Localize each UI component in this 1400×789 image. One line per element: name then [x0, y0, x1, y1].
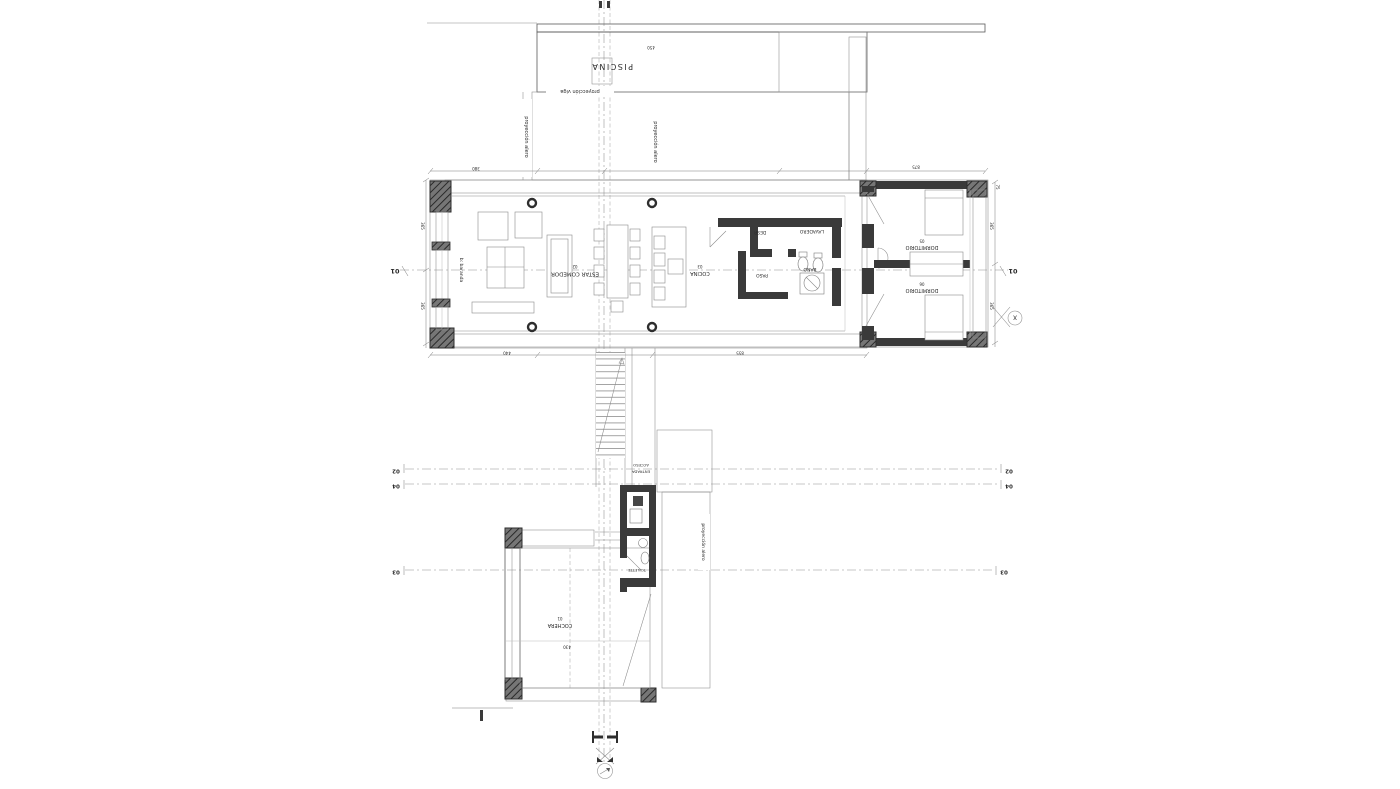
pool-label: PISCINA: [591, 62, 633, 71]
beam-projection-label: proyección viga: [560, 88, 600, 95]
dim-text: 365: [989, 222, 994, 230]
dining-set: [594, 225, 640, 312]
dim-text: 855: [736, 351, 744, 356]
dim-text: 75: [995, 184, 1000, 190]
gallery-edge-label: b: baranda: [458, 258, 464, 283]
corner-block: [430, 181, 451, 212]
west-window-wall: [432, 212, 450, 330]
top-dimension-line: 380 875 450: [428, 45, 988, 174]
section-04-right: 04: [1005, 483, 1013, 489]
chair: [630, 265, 640, 277]
dim-text: 430: [563, 645, 571, 650]
gate-arrow: [597, 757, 603, 762]
chair: [594, 283, 604, 295]
toilette-block: TOILETTE: [620, 485, 656, 592]
x-marker-label: X: [1013, 314, 1017, 321]
living-label: ESTAR COMEDOR: [551, 271, 599, 277]
dim-text: 380: [472, 166, 480, 171]
garage-number: 01: [557, 616, 563, 621]
eave-mid-label: proyección alero: [652, 121, 659, 162]
corner-block: [505, 528, 522, 548]
stone-column: [849, 37, 866, 180]
door-swing: [866, 294, 884, 326]
section-04-left: 04: [392, 483, 400, 489]
dim-text: 450: [647, 45, 655, 50]
pool-terrace: PISCINA proyección viga proyección alero…: [427, 23, 988, 180]
access-label-2: ENTRADA: [632, 470, 650, 475]
reference-tick: [480, 710, 483, 721]
section-marker-x: X: [993, 307, 1022, 327]
central-stair: ACCESO ENTRADA: [596, 348, 655, 487]
outdoor-stair: proyección alero: [657, 430, 712, 688]
wc: [641, 552, 649, 564]
living-furniture: [472, 212, 572, 313]
dorm2-number: 06: [919, 282, 925, 287]
sofa: [487, 247, 524, 288]
pool-outline: [537, 32, 867, 92]
living-number: 02: [572, 264, 578, 269]
living-wing: b: baranda: [430, 180, 867, 348]
door-swing: [866, 192, 884, 224]
garage-block: 01 COCHERA 430 TOILETTE: [505, 485, 656, 702]
stone-deck-upper: [779, 32, 867, 92]
dim-text: 365: [989, 302, 994, 310]
stone-strip-east: [973, 190, 986, 338]
chair: [594, 247, 604, 259]
section-02-right: 02: [1005, 468, 1013, 474]
chair: [630, 247, 640, 259]
bedroom-wing: 05 DORMITORIO 06 DORMITORIO 365 365 75 X: [860, 180, 1022, 347]
corner-block: [641, 688, 656, 702]
bed: [925, 295, 963, 340]
bed: [925, 190, 963, 235]
access-label-1: ACCESO: [633, 463, 649, 468]
stone-band-top: [445, 180, 862, 193]
dim-text: 365: [420, 222, 425, 230]
axis-tag: [607, 1, 610, 8]
dorm2-label: DORMITORIO: [905, 287, 938, 293]
section-03-left: 03: [392, 569, 400, 575]
corner-block: [430, 328, 454, 348]
section-01-left: 01: [390, 267, 400, 275]
sink: [639, 539, 648, 548]
toilette-label: TOILETTE: [627, 568, 647, 573]
low-cabinet: [472, 302, 534, 313]
stone-band-garage-bottom: [506, 688, 656, 701]
dim-text: 440: [503, 351, 511, 356]
stone-terrace: [532, 92, 849, 180]
east-dimension-line: 365 365 75: [989, 180, 1000, 347]
chair: [630, 229, 640, 241]
landing: [657, 430, 712, 492]
entry-gate: [593, 731, 617, 779]
stone-band-bottom: [445, 334, 862, 347]
dorm1-number: 05: [919, 239, 925, 244]
chair: [611, 301, 623, 312]
section-02-left: 02: [392, 468, 400, 474]
eave-stair-label: proyección alero: [700, 523, 707, 561]
floor-plan-canvas: PISCINA proyección viga proyección alero…: [0, 0, 1400, 789]
door-swing: [627, 556, 641, 570]
water-heater: [633, 496, 643, 506]
garage-ramp-line: [623, 594, 651, 686]
dorm1-label: DORMITORIO: [905, 244, 938, 250]
desp-label: DESP.: [754, 229, 767, 235]
section-03-right: 03: [1000, 569, 1008, 575]
kitchen-island: [652, 227, 686, 307]
paso-label: PASO: [756, 272, 768, 278]
armchair: [515, 212, 542, 238]
eave-left-label: proyección alero: [523, 116, 530, 157]
dim-text: 365: [420, 302, 425, 310]
axis-lines: [400, 0, 1008, 762]
axis-tag: [599, 1, 602, 8]
armchair: [478, 212, 508, 240]
lavadero-label: LAVADERO: [799, 228, 824, 234]
bano-label: BAÑO: [803, 266, 817, 273]
dining-table: [607, 225, 628, 298]
chair: [630, 283, 640, 295]
corner-block: [505, 678, 522, 699]
kitchen-label: COCINA: [690, 270, 710, 276]
chair: [594, 229, 604, 241]
sideboard-inner: [551, 239, 568, 293]
section-01-right: 01: [1008, 267, 1018, 275]
garage-label: COCHERA: [547, 622, 572, 628]
floor-plan-page: PISCINA proyección viga proyección alero…: [0, 0, 1400, 789]
kitchen-number: 03: [697, 264, 703, 269]
dim-text: 875: [912, 165, 920, 170]
bathroom-fixtures: [798, 252, 824, 294]
